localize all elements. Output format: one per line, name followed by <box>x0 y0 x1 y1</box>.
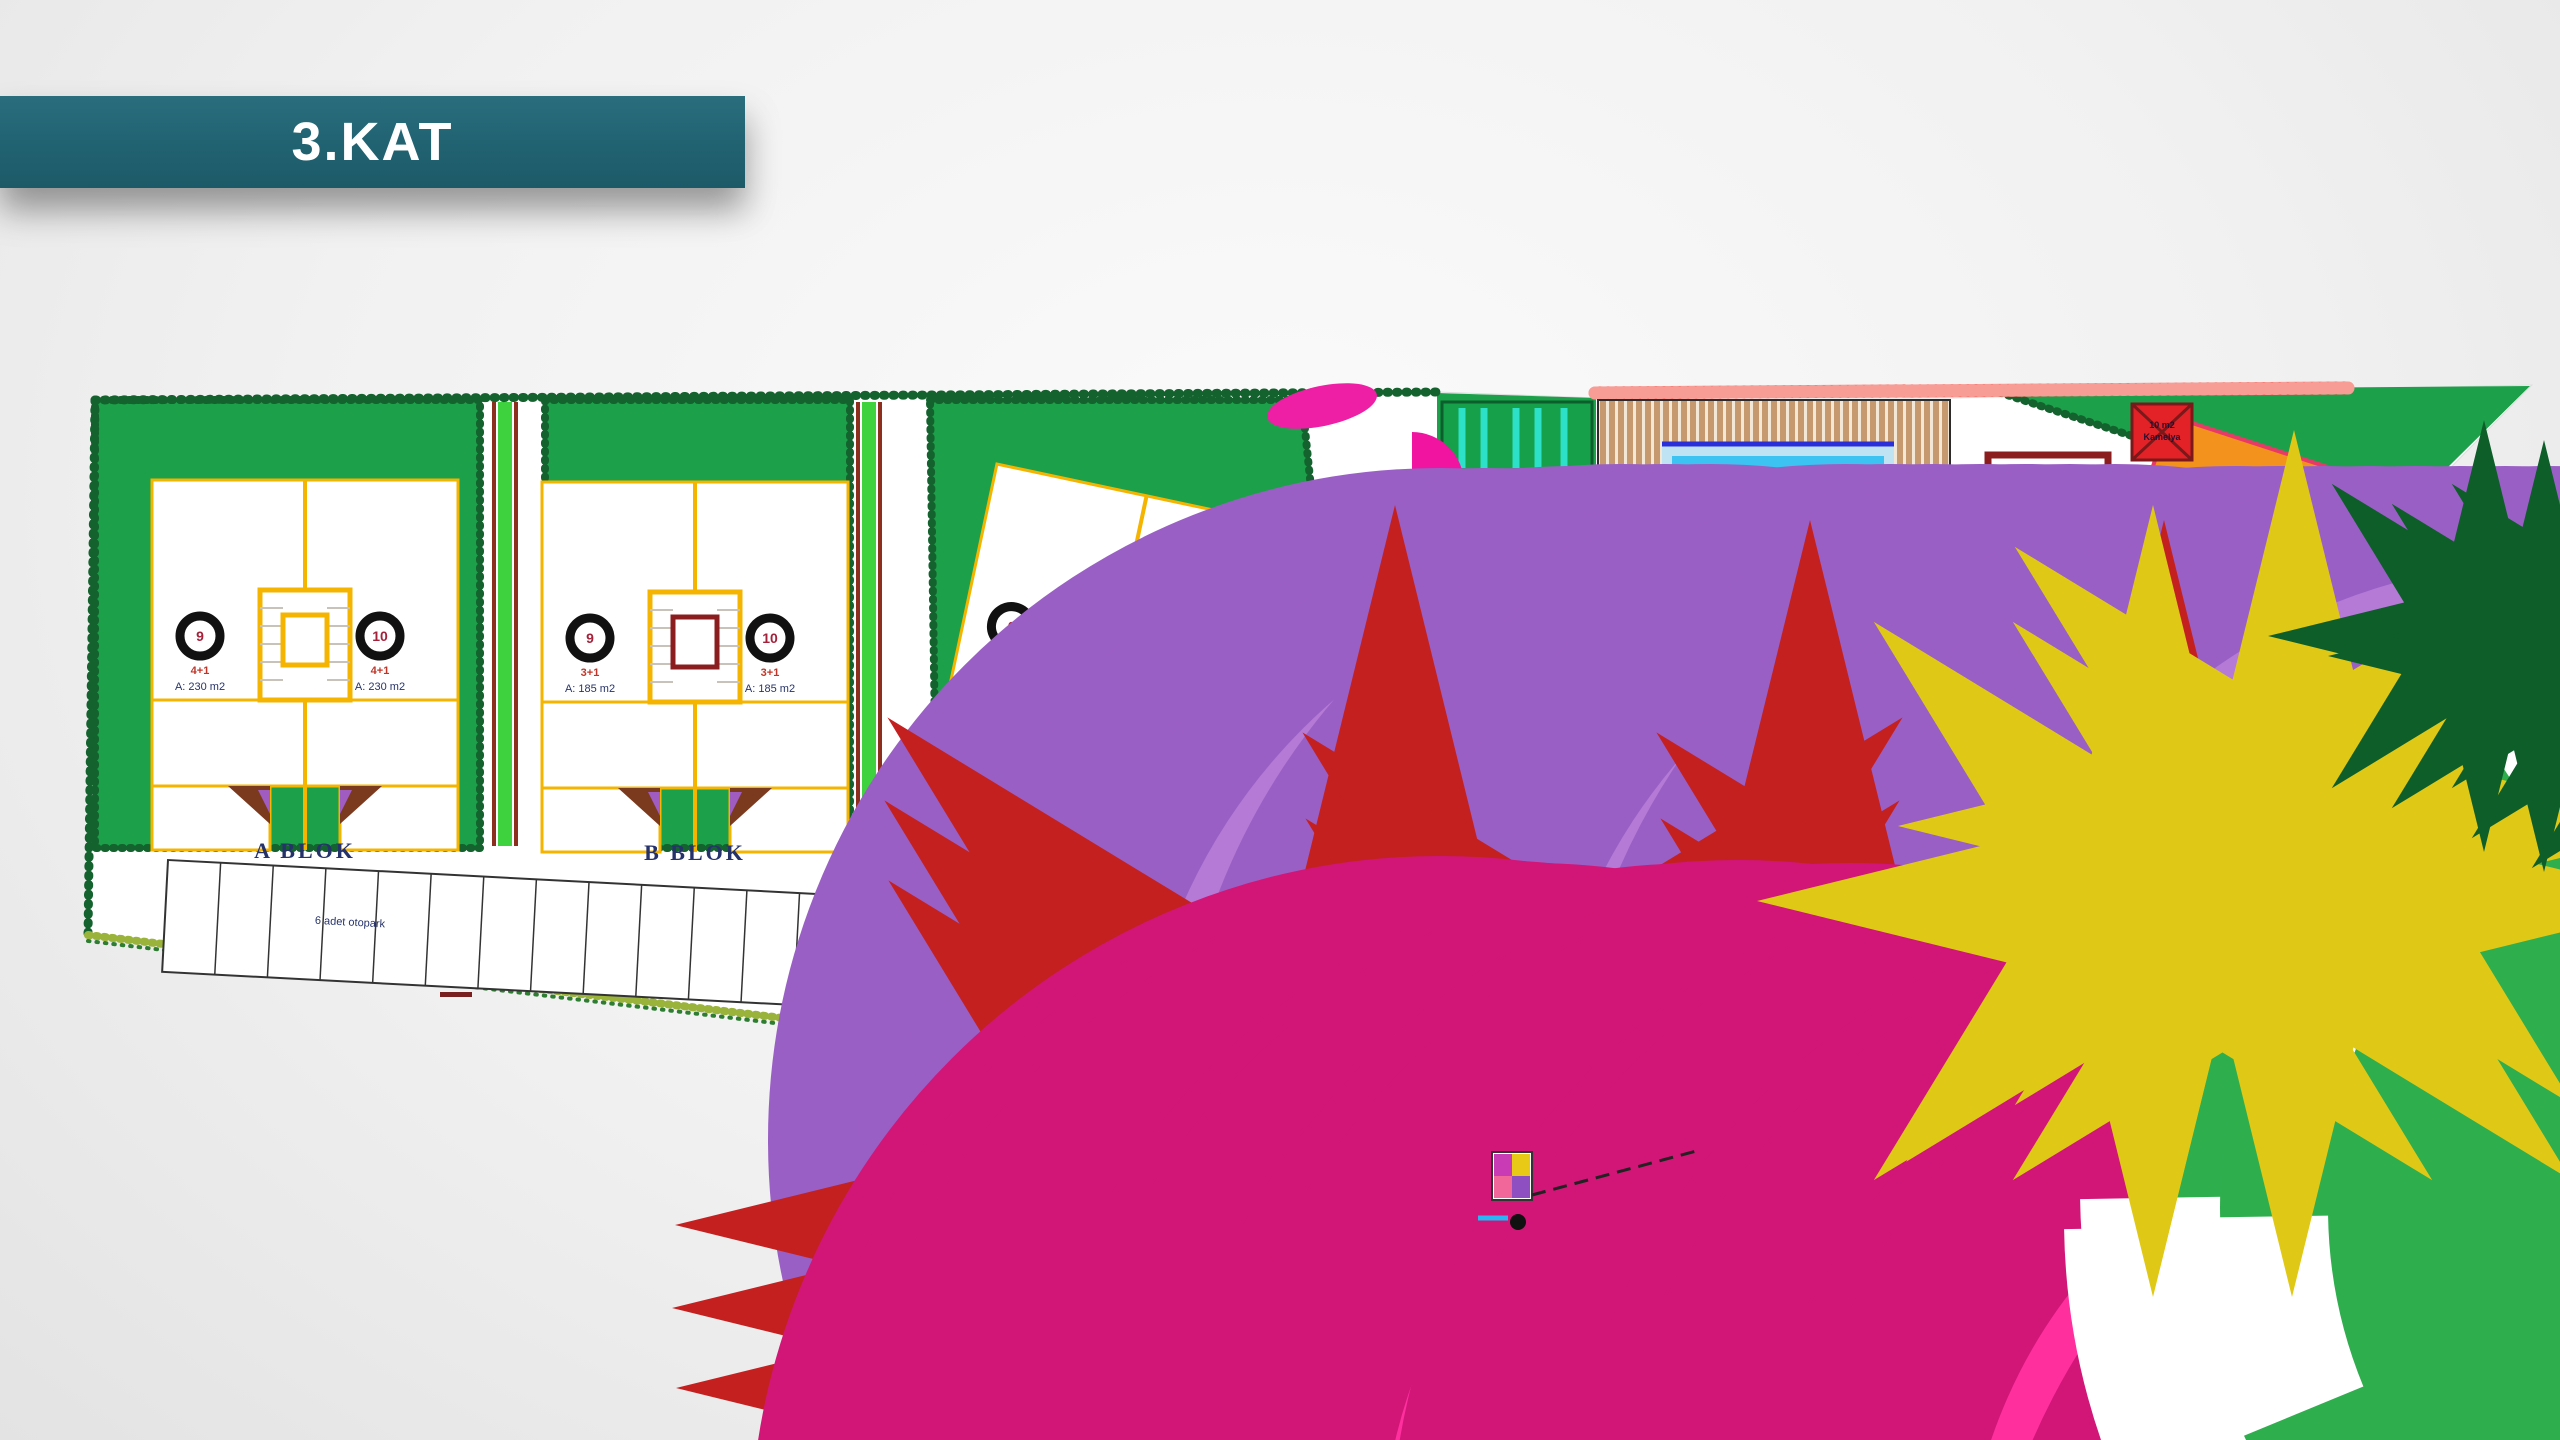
kamelya: 10 m2 Kamelya <box>2132 404 2192 460</box>
unit-number: 9 <box>196 628 204 644</box>
scale-dash <box>440 992 472 997</box>
site-plan-drawing: 112,5m2 Basketbol Sahası 80 m2 Çocuk Oyu… <box>0 0 2560 1440</box>
unit-type: 3+1 <box>581 667 600 679</box>
elevator-core <box>283 615 327 665</box>
gate-post <box>1510 1214 1526 1230</box>
unit-area: A: 230 m2 <box>175 681 225 693</box>
unit-area: A: 185 m2 <box>565 683 615 695</box>
unit-number: 10 <box>372 628 388 644</box>
kamelya-label-line2: Kamelya <box>2143 432 2181 442</box>
unit-number: 10 <box>762 630 778 646</box>
unit-type: 4+1 <box>371 665 390 677</box>
unit-number: 9 <box>586 630 594 646</box>
block-b: 93+1A: 185 m2103+1A: 185 m2B BLOK <box>542 482 848 865</box>
block-label: B BLOK <box>644 840 746 865</box>
block-a: 94+1A: 230 m2104+1A: 230 m2A BLOK <box>152 480 458 863</box>
block-label: A BLOK <box>254 838 356 863</box>
kamelya-label-line1: 10 m2 <box>2149 420 2175 430</box>
unit-area: A: 185 m2 <box>745 683 795 695</box>
site-plan-page: 3.KAT <box>0 0 2560 1440</box>
unit-type: 3+1 <box>761 667 780 679</box>
elevator-core <box>673 617 717 667</box>
unit-type: 4+1 <box>191 665 210 677</box>
unit-area: A: 230 m2 <box>355 681 405 693</box>
